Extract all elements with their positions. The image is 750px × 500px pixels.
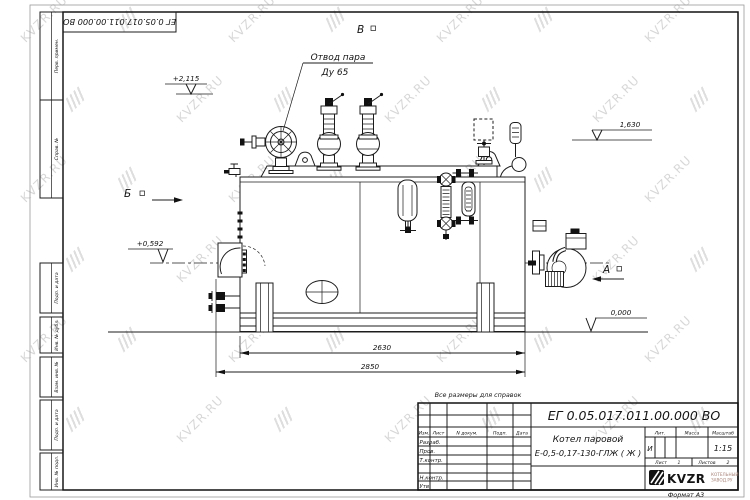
col-podp: Подп.	[493, 431, 507, 437]
mass-label: Масса	[685, 431, 700, 437]
safety-valve	[317, 93, 344, 170]
elev-zero-value: 0,000	[611, 308, 632, 317]
logo-tagline-1: КОТЕЛЬНЫЙ	[711, 472, 738, 477]
elevation-mark-left: +0,592	[128, 239, 173, 262]
view-label-a: А	[602, 264, 610, 276]
air-tap-valve	[224, 164, 240, 177]
boiler-drawing	[108, 93, 648, 332]
support-foot	[256, 283, 273, 332]
sheets-label: Листов	[697, 460, 715, 466]
corner-stamp: ЕГ 0.05.017.011.00.000 ВО	[62, 12, 176, 32]
lit-value: И	[647, 444, 653, 453]
view-label-b: Б	[124, 188, 131, 200]
drawing-sheet: KVZR.RUKVZR.RUKVZR.RUKVZR.RUKVZR.RUKVZR.…	[0, 0, 750, 500]
row-razrab: Разраб.	[420, 440, 441, 446]
title-block: Все размеры для справок ЕГ 0.05.017.011.…	[418, 391, 738, 499]
scale-value: 1:15	[714, 443, 732, 453]
elev-left-value: +0,592	[137, 239, 164, 248]
product-model: Е-0,5-0,17-130-ГЛЖ ( Ж )	[535, 448, 641, 458]
format-label: Формат А3	[668, 491, 704, 499]
doc-number: ЕГ 0.05.017.011.00.000 ВО	[548, 408, 721, 423]
pressure-gauge-cock	[510, 123, 521, 158]
row-utv: Утв.	[420, 484, 431, 490]
margin-label: Инв. № дубл.	[54, 319, 60, 350]
margin-label: Инв. № подл.	[54, 456, 60, 488]
elevation-mark-zero: 0,000	[586, 308, 647, 331]
margin-label: Подп. и дата	[54, 409, 60, 440]
steam-outlet-dn: Ду 65	[321, 68, 349, 78]
scale-label: Масштаб	[712, 431, 734, 437]
gauge-valve	[476, 140, 492, 165]
margin-label: Взам. инв. №	[54, 361, 60, 392]
corner-doc-number: ЕГ 0.05.017.011.00.000 ВО	[62, 17, 175, 27]
margin-label: Подп. и дата	[54, 272, 60, 303]
col-data: Дата	[515, 431, 528, 437]
dim-shell-length: 2630	[373, 343, 392, 352]
elevation-mark-right: 1,630	[572, 120, 652, 140]
lit-label: Лит.	[654, 431, 666, 437]
margin-column: Перв. примен. Справ. № Подп. и дата Инв.…	[40, 12, 63, 490]
company-logo: KVZR КОТЕЛЬНЫЙ ЗАВОД.РУ	[649, 470, 738, 486]
burner-unit	[528, 221, 586, 288]
col-izm: Изм.	[419, 431, 430, 437]
product-name: Котел паровой	[553, 435, 624, 445]
phantom-outline	[474, 119, 493, 140]
reference-note: Все размеры для справок	[435, 391, 522, 399]
lug-hole	[303, 158, 308, 163]
elevation-mark-top: +2,115	[165, 74, 213, 94]
view-arrow-right	[174, 197, 183, 203]
sheet-label: Лист	[654, 460, 667, 466]
drain-valves	[209, 291, 241, 313]
margin-label: Справ. №	[54, 138, 60, 161]
safety-valve	[356, 93, 383, 170]
margin-label: Перв. примен.	[54, 39, 60, 74]
elev-top-value: +2,115	[173, 74, 200, 83]
manhole	[306, 281, 338, 304]
logo-text: KVZR	[667, 472, 706, 486]
view-label-v: В	[357, 24, 364, 36]
steam-outlet-note: Отвод пара	[311, 53, 366, 63]
sheet-value: 1	[678, 460, 681, 466]
row-nkontr: Н.контр.	[420, 476, 444, 482]
logo-tagline-2: ЗАВОД.РУ	[711, 478, 733, 483]
col-list: Лист	[432, 431, 445, 437]
support-foot	[477, 283, 494, 332]
drawing-canvas: ЕГ 0.05.017.011.00.000 ВО Перв. примен. …	[0, 0, 750, 500]
row-tkontr: Т.контр.	[420, 458, 443, 464]
col-ndokum: N докум.	[456, 431, 477, 437]
lifting-lug	[295, 152, 315, 166]
view-arrow-left	[592, 276, 601, 282]
row-prov: Пров.	[420, 449, 436, 455]
sheets-value: 2	[727, 460, 730, 466]
elev-right-value: 1,630	[620, 120, 641, 129]
dim-overall-length: 2850	[361, 362, 380, 371]
siphon-loop	[501, 158, 527, 177]
